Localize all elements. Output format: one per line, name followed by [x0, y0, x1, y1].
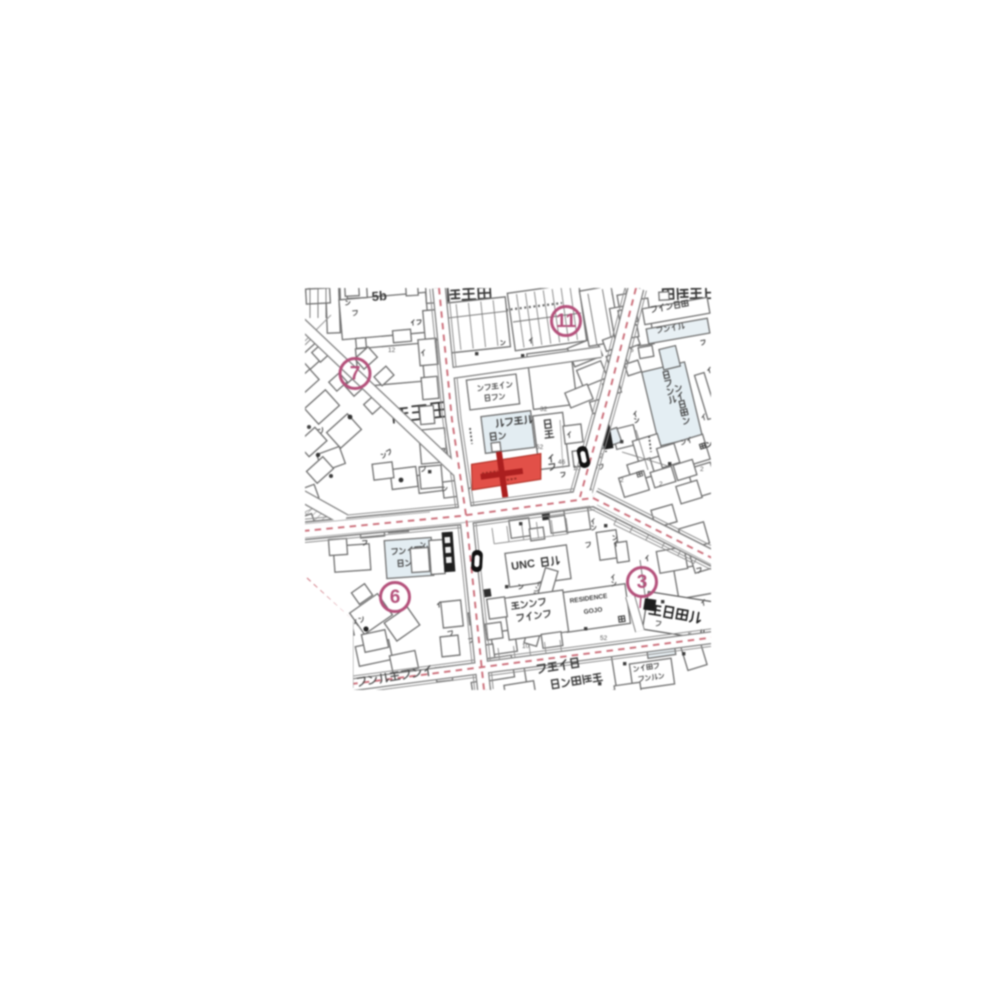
svg-text:32: 32: [540, 406, 548, 413]
svg-text:2: 2: [620, 477, 624, 484]
svg-text:2: 2: [659, 481, 663, 488]
svg-text:11: 11: [556, 311, 577, 332]
svg-text:6: 6: [390, 587, 401, 608]
svg-text:52: 52: [600, 635, 608, 642]
svg-text:5b: 5b: [371, 288, 387, 304]
svg-text:12: 12: [388, 347, 396, 354]
svg-text:2: 2: [700, 466, 704, 473]
svg-text:7: 7: [350, 364, 361, 385]
svg-text:10: 10: [522, 643, 530, 650]
svg-text:3: 3: [637, 572, 648, 593]
svg-text:52: 52: [536, 444, 544, 451]
svg-text:46: 46: [558, 459, 566, 466]
